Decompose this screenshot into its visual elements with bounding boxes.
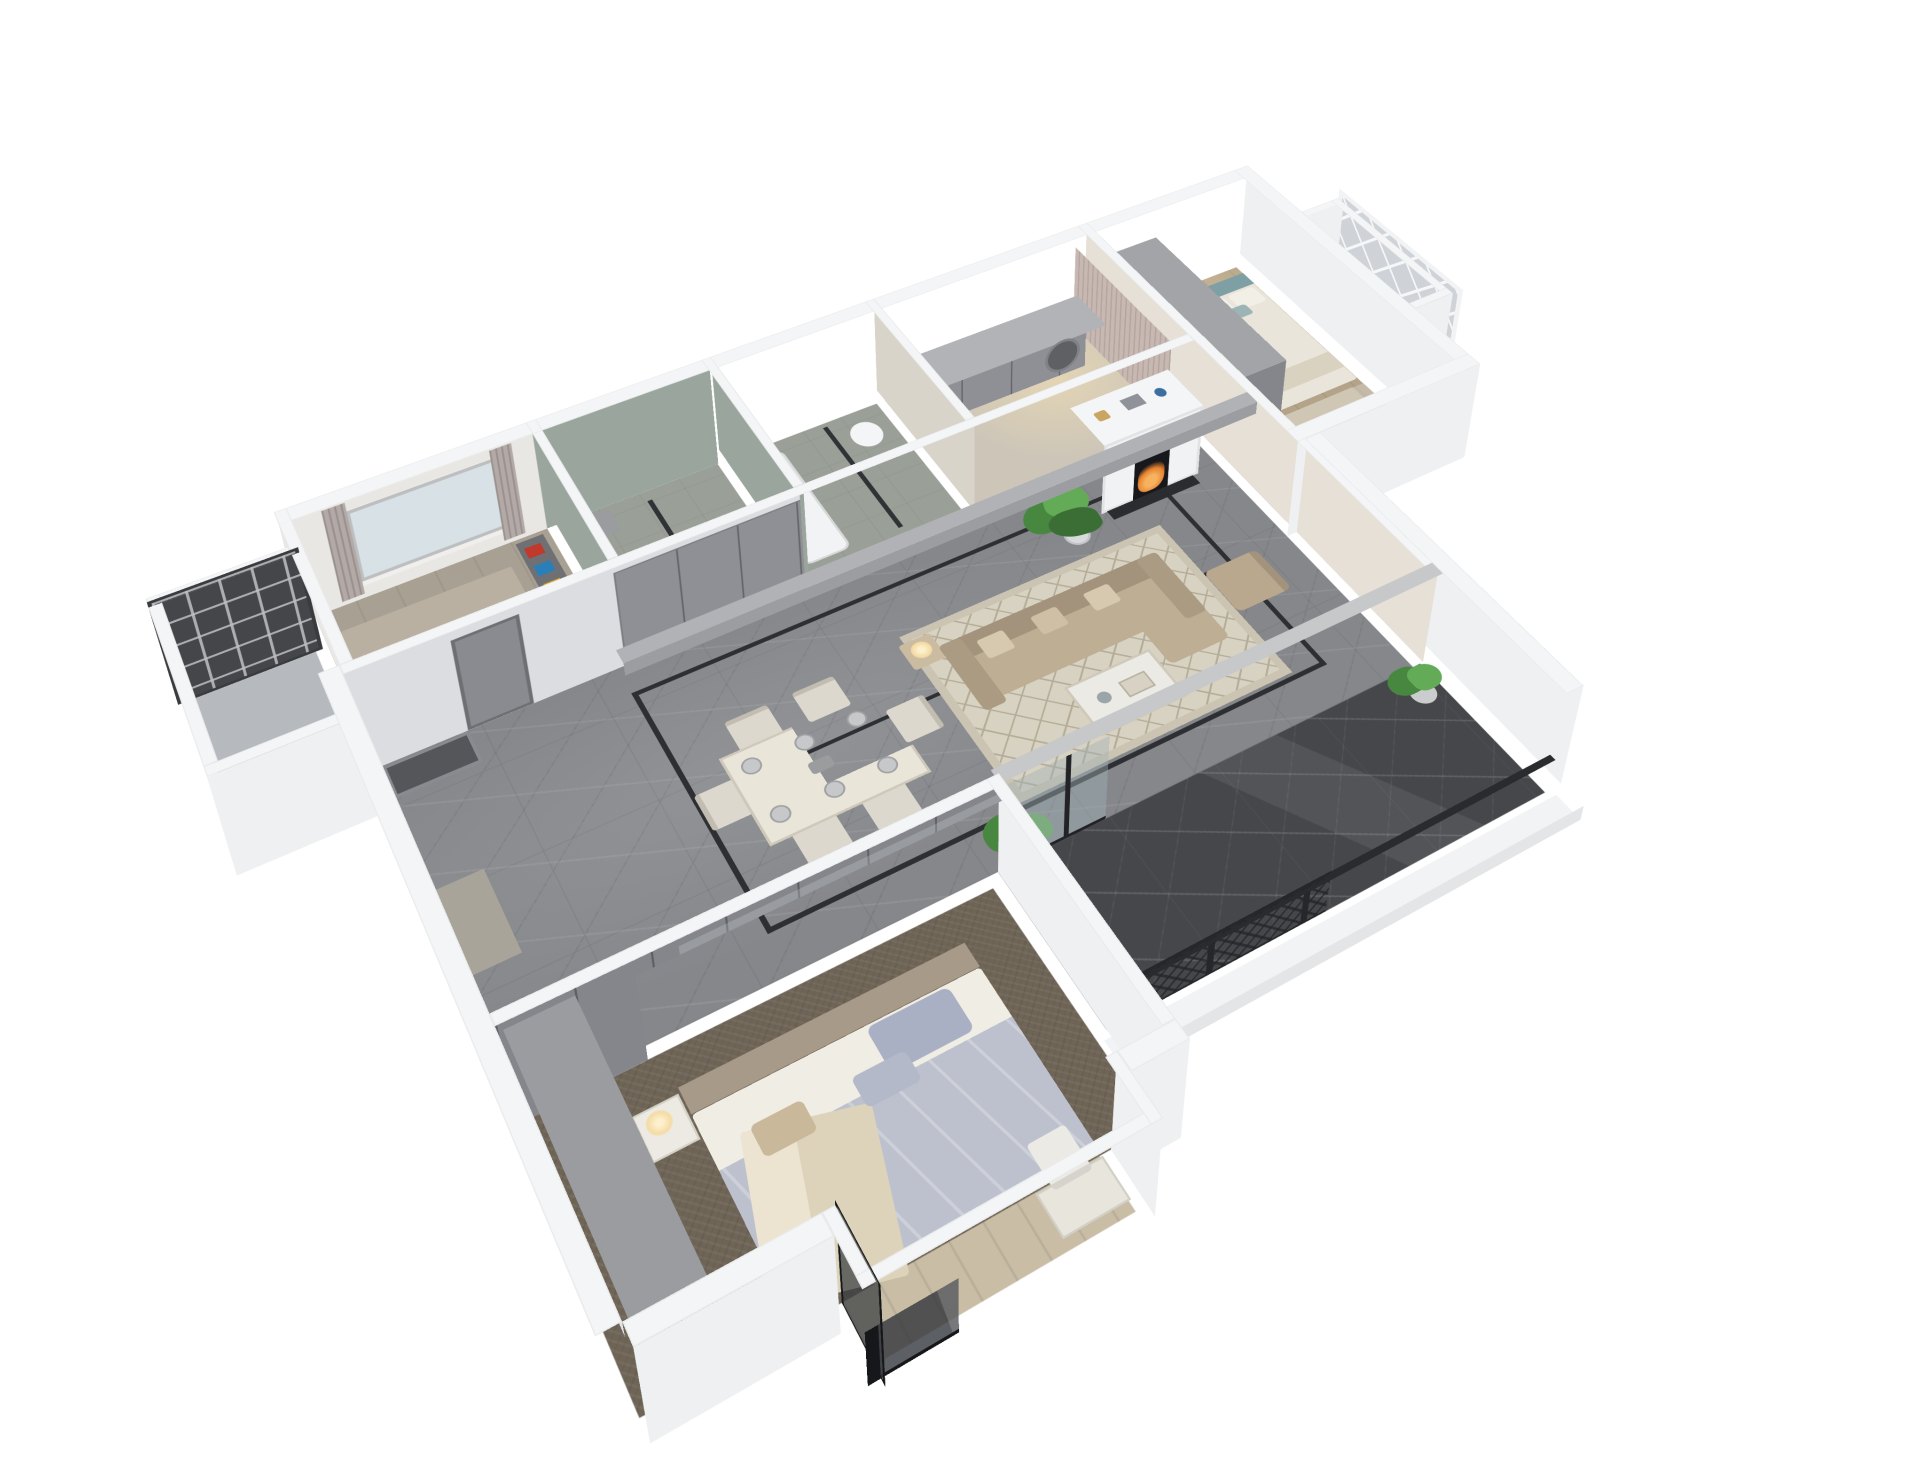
mantel-decor-gold bbox=[1093, 409, 1112, 421]
book-red bbox=[524, 543, 546, 559]
apartment-model bbox=[125, 254, 1850, 1468]
coffee-table-vase bbox=[1094, 690, 1114, 706]
book-blue bbox=[533, 560, 555, 576]
mantel-decor-books bbox=[1119, 393, 1146, 410]
render-canvas bbox=[0, 0, 1920, 1468]
scene-camera bbox=[58, 42, 1863, 1422]
mantel-decor-vase bbox=[1152, 386, 1169, 398]
